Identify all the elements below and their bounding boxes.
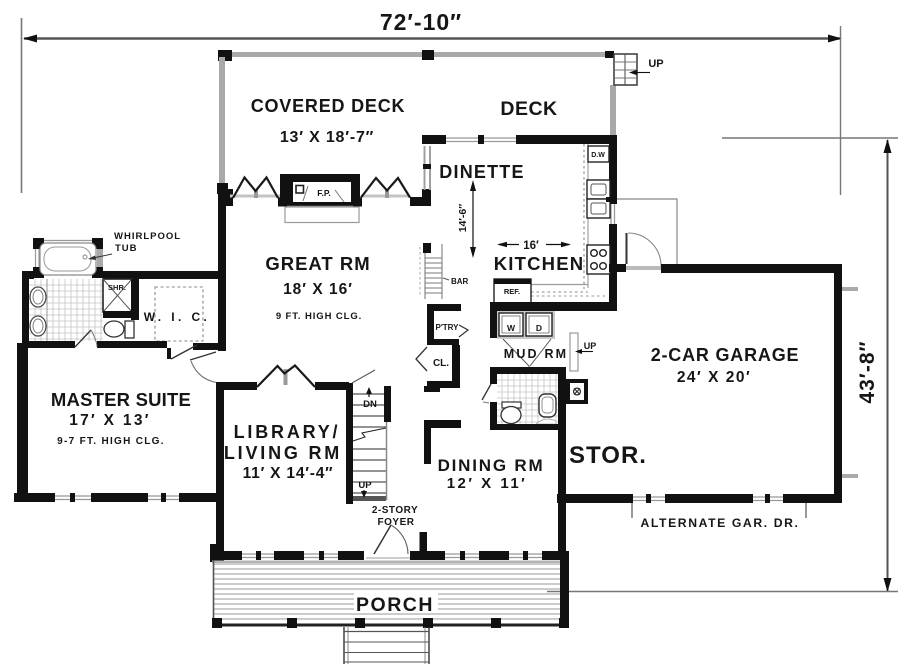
svg-text:ALTERNATE GAR. DR.: ALTERNATE GAR. DR. (640, 516, 799, 530)
svg-text:14′-6″: 14′-6″ (457, 204, 469, 233)
svg-text:24′ X 20′: 24′ X 20′ (677, 369, 751, 386)
svg-text:2-STORY: 2-STORY (372, 505, 418, 516)
svg-text:REF.: REF. (504, 287, 520, 296)
svg-text:SHR.: SHR. (108, 283, 126, 292)
svg-text:MASTER SUITE: MASTER SUITE (51, 389, 191, 410)
svg-text:PORCH: PORCH (356, 594, 434, 616)
svg-text:FOYER: FOYER (378, 517, 415, 528)
svg-text:P′TRY: P′TRY (436, 323, 460, 332)
svg-text:KITCHEN: KITCHEN (494, 253, 585, 274)
svg-text:9-7 FT. HIGH CLG.: 9-7 FT. HIGH CLG. (57, 436, 165, 447)
svg-text:F.P.: F.P. (317, 188, 331, 198)
svg-text:W: W (507, 323, 516, 333)
svg-text:12′ X 11′: 12′ X 11′ (447, 475, 528, 492)
svg-text:72′-10″: 72′-10″ (380, 9, 462, 35)
svg-text:UP: UP (358, 480, 372, 491)
svg-text:BAR: BAR (451, 277, 469, 286)
svg-text:MUD RM: MUD RM (504, 347, 569, 361)
svg-text:TUB: TUB (115, 243, 138, 254)
svg-text:CL.: CL. (433, 358, 449, 369)
svg-text:17′ X 13′: 17′ X 13′ (69, 412, 151, 429)
svg-text:DN: DN (363, 399, 377, 410)
svg-text:18′ X 16′: 18′ X 16′ (283, 281, 353, 298)
svg-text:D: D (536, 323, 542, 333)
svg-text:STOR.: STOR. (569, 442, 647, 469)
svg-text:COVERED DECK: COVERED DECK (251, 96, 406, 116)
svg-text:W. I. C.: W. I. C. (144, 310, 211, 324)
svg-text:2-CAR GARAGE: 2-CAR GARAGE (651, 345, 800, 365)
svg-text:9 FT. HIGH CLG.: 9 FT. HIGH CLG. (276, 311, 362, 322)
svg-text:DINETTE: DINETTE (439, 162, 524, 182)
svg-text:UP: UP (584, 341, 597, 351)
svg-text:16′: 16′ (523, 240, 539, 252)
svg-text:DECK: DECK (500, 98, 557, 120)
svg-text:43′-8″: 43′-8″ (856, 340, 879, 403)
svg-text:GREAT RM: GREAT RM (265, 253, 370, 274)
svg-text:11′ X 14′-4″: 11′ X 14′-4″ (243, 465, 334, 482)
svg-text:WHIRLPOOL: WHIRLPOOL (114, 231, 181, 242)
svg-text:D.W: D.W (591, 152, 605, 159)
svg-text:UP: UP (648, 58, 663, 70)
svg-text:LIBRARY/: LIBRARY/ (234, 422, 341, 442)
svg-text:13′ X 18′-7″: 13′ X 18′-7″ (280, 129, 374, 146)
svg-text:LIVING RM: LIVING RM (224, 443, 342, 463)
svg-text:DINING RM: DINING RM (438, 456, 545, 475)
